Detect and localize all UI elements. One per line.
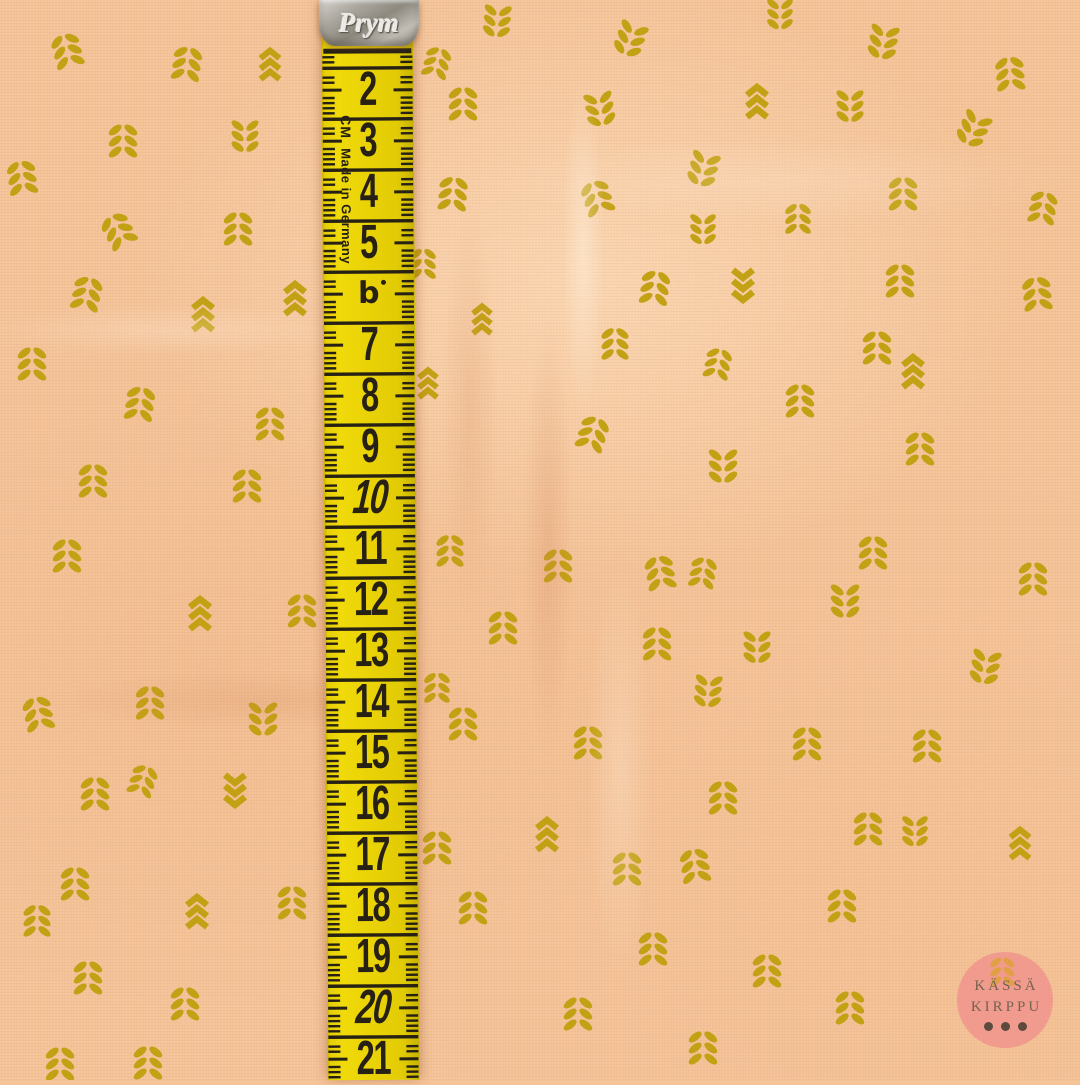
leaf-motif — [766, 0, 795, 31]
leaf-motif — [480, 2, 513, 40]
leaf-motif — [966, 646, 1004, 688]
b-quality-mark: b — [358, 279, 380, 309]
leaf-motif — [835, 88, 866, 123]
leaf-motif — [687, 1029, 719, 1066]
leaf-motif — [51, 537, 83, 574]
leaf-motif — [169, 985, 201, 1022]
chevron-motif — [537, 820, 557, 850]
tape-number-14: 14 — [354, 678, 388, 726]
leaf-motif — [826, 887, 858, 924]
leaf-motif — [79, 775, 111, 812]
leaf-motif — [884, 262, 916, 299]
leaf-motif — [421, 829, 453, 866]
leaf-motif — [16, 345, 48, 382]
leaf-motif — [901, 814, 930, 847]
chevron-motif — [225, 775, 245, 805]
leaf-motif — [904, 430, 936, 467]
leaf-motif — [44, 1045, 76, 1080]
leaf-motif — [77, 462, 109, 499]
chevron-motif — [190, 599, 210, 629]
leaf-motif — [418, 43, 455, 83]
leaf-motif — [435, 174, 470, 214]
chevron-motif — [187, 897, 207, 927]
tape-number-21: 21 — [357, 1035, 391, 1083]
leaf-motif — [857, 534, 889, 571]
leaf-motif — [581, 88, 619, 130]
leaf-motif — [686, 554, 720, 592]
leaf-motif — [107, 122, 139, 159]
tape-end-clip: Prym — [319, 0, 419, 46]
tape-number-16: 16 — [355, 780, 389, 828]
chevron-motif — [733, 270, 753, 300]
tape-number-15: 15 — [355, 729, 389, 777]
tape-number-11: 11 — [354, 525, 386, 573]
leaf-motif — [423, 671, 452, 704]
leaf-motif — [861, 329, 893, 366]
leaf-motif — [784, 202, 813, 235]
leaf-motif — [791, 725, 823, 762]
leaf-motif — [230, 118, 261, 153]
leaf-motif — [447, 85, 479, 122]
tape-number-13: 13 — [354, 627, 388, 675]
chevron-motif — [419, 370, 437, 397]
leaf-motif — [611, 850, 643, 887]
leaf-motif — [641, 625, 673, 662]
leaf-motif — [47, 29, 88, 73]
chevron-motif — [261, 51, 280, 80]
leaf-motif — [572, 724, 604, 761]
tape-number-2: 2 — [359, 66, 376, 114]
leaf-motif — [435, 533, 466, 568]
leaf-motif — [600, 326, 631, 361]
leaf-motif — [700, 345, 735, 384]
leaf-motif — [707, 447, 739, 484]
leaf-motif — [707, 779, 739, 816]
leaf-motif — [864, 21, 902, 63]
leaf-motif — [121, 383, 158, 424]
chevron-motif — [903, 357, 923, 387]
tape-number-17: 17 — [355, 831, 389, 879]
chevron-motif — [193, 300, 213, 330]
leaf-motif — [677, 845, 714, 886]
leaf-motif — [572, 411, 614, 456]
leaf-motif — [742, 629, 773, 664]
tape-number-3: 3 — [359, 117, 376, 165]
leaf-motif — [96, 207, 142, 255]
leaf-motif — [834, 989, 866, 1026]
leaf-motif — [641, 552, 679, 594]
leaf-motif — [67, 272, 106, 315]
watermark-dots — [957, 1022, 1053, 1031]
watermark-title-line2: KIRPPU — [957, 1000, 1053, 1015]
leaf-motif — [22, 903, 53, 938]
prym-brand-logo: Prym — [339, 8, 399, 39]
watermark-title-line1: KÄSSÄ — [957, 979, 1053, 994]
tape-number-5: 5 — [360, 219, 377, 267]
leaf-motif — [1019, 274, 1055, 314]
leaf-motif — [636, 267, 673, 308]
leaf-motif — [992, 54, 1027, 94]
chevron-motif — [747, 87, 767, 117]
leaf-motif — [457, 889, 489, 926]
watermark-dot — [1001, 1022, 1010, 1031]
leaf-motif — [887, 175, 919, 212]
shop-watermark: KÄSSÄ KIRPPU — [957, 952, 1053, 1048]
leaf-motif — [609, 16, 652, 62]
chevron-motif — [285, 284, 305, 314]
leaf-motif — [1025, 188, 1061, 228]
tape-number-19: 19 — [356, 933, 390, 981]
tape-number-10: 10 — [351, 474, 389, 522]
cm-unit-label: CM — [339, 115, 353, 139]
leaf-motif — [562, 995, 594, 1032]
tape-number-9: 9 — [361, 423, 378, 471]
tape-number-8: 8 — [361, 372, 378, 420]
tape-number-7: 7 — [361, 321, 378, 369]
leaf-motif — [911, 727, 943, 764]
leaf-motif — [19, 692, 58, 735]
leaf-motif — [276, 884, 308, 921]
chevron-motif — [473, 306, 491, 333]
leaf-motif — [286, 592, 318, 629]
leaf-motif — [124, 760, 162, 801]
leaf-motif — [751, 952, 783, 989]
watermark-dot — [984, 1022, 993, 1031]
leaf-motif — [247, 700, 279, 737]
leaf-motif — [691, 672, 724, 710]
leaf-motif — [1017, 560, 1049, 597]
leaf-motif — [542, 547, 574, 584]
made-in-germany-label: Made in Germany — [339, 148, 353, 264]
leaf-motif — [168, 43, 205, 84]
chevron-motif — [1011, 830, 1030, 859]
watermark-dot — [1018, 1022, 1027, 1031]
leaf-motif — [447, 705, 479, 742]
leaf-motif — [222, 210, 254, 247]
leaf-motif — [689, 212, 718, 245]
fabric-pattern-layer — [0, 0, 1080, 1080]
leaf-motif — [784, 382, 816, 419]
leaf-motif — [683, 147, 724, 191]
leaf-motif — [59, 865, 91, 902]
leaf-motif — [637, 930, 669, 967]
leaf-motif — [132, 1044, 164, 1080]
leaf-motif — [72, 959, 104, 996]
leaf-motif — [951, 105, 996, 152]
tape-number-18: 18 — [356, 882, 390, 930]
leaf-motif — [4, 157, 41, 198]
tape-number-4: 4 — [360, 168, 377, 216]
leaf-motif — [852, 810, 884, 847]
leaf-motif — [487, 609, 519, 646]
leaf-motif — [254, 405, 286, 442]
tape-number-20: 20 — [354, 984, 392, 1032]
tape-number-12: 12 — [354, 576, 388, 624]
leaf-motif — [829, 582, 861, 619]
leaf-motif — [576, 175, 618, 220]
leaf-motif — [231, 467, 263, 504]
measuring-tape: 2345789101112131415161718192021 CM Made … — [321, 0, 420, 1080]
leaf-motif — [134, 684, 166, 721]
